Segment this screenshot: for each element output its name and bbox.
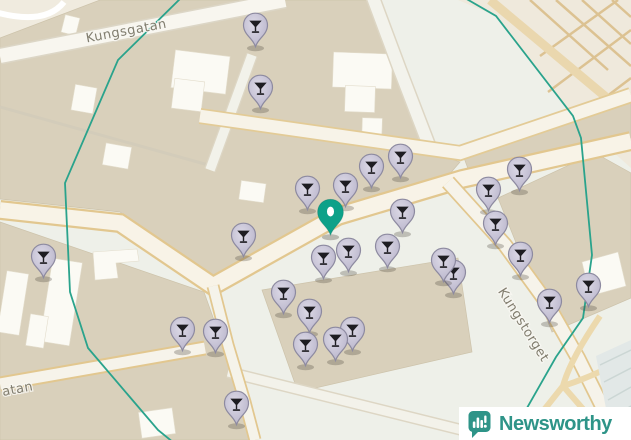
venue-pin[interactable] xyxy=(506,156,533,196)
venue-pin[interactable] xyxy=(322,326,349,366)
venue-pin[interactable] xyxy=(482,210,509,250)
venue-pin[interactable] xyxy=(223,390,250,430)
newsworthy-watermark[interactable]: Newsworthy xyxy=(459,407,631,440)
brand-name: Newsworthy xyxy=(499,414,612,434)
venue-pin[interactable] xyxy=(335,237,362,277)
venue-pin[interactable] xyxy=(202,318,229,358)
venue-pin[interactable] xyxy=(30,243,57,283)
venue-pin[interactable] xyxy=(430,247,457,287)
venue-pin[interactable] xyxy=(389,198,416,238)
venue-pin[interactable] xyxy=(536,288,563,328)
venue-pin[interactable] xyxy=(358,153,385,193)
venue-pin[interactable] xyxy=(292,331,319,371)
venue-pin[interactable] xyxy=(387,143,414,183)
venue-pin[interactable] xyxy=(230,222,257,262)
venue-pin[interactable] xyxy=(374,233,401,273)
bar-chart-bubble-icon xyxy=(466,409,493,439)
venue-pin[interactable] xyxy=(310,244,337,284)
venue-pin[interactable] xyxy=(169,316,196,356)
venue-pin[interactable] xyxy=(575,272,602,312)
map-view: Kungsgatan Kungstorget atan xyxy=(0,0,631,440)
venue-pin[interactable] xyxy=(270,279,297,319)
selected-location-pin[interactable] xyxy=(316,198,345,241)
venue-pin[interactable] xyxy=(242,12,269,52)
venue-pin[interactable] xyxy=(247,74,274,114)
venue-pin[interactable] xyxy=(507,241,534,281)
